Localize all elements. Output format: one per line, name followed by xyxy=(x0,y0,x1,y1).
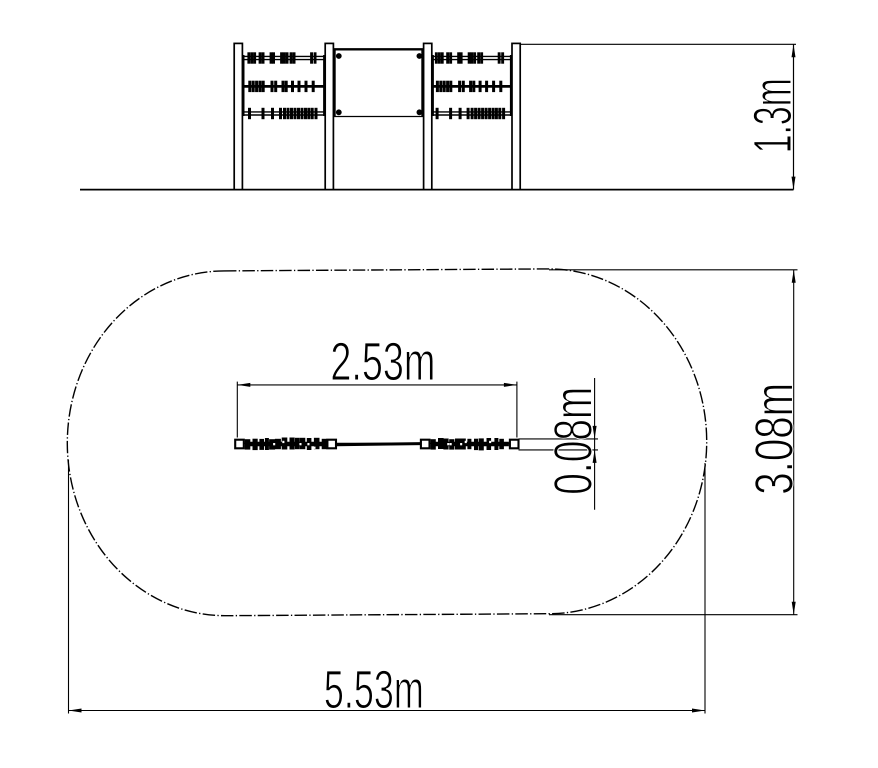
svg-text:5.53m: 5.53m xyxy=(324,660,424,720)
svg-text:3.08m: 3.08m xyxy=(745,383,805,495)
svg-text:2.53m: 2.53m xyxy=(330,332,435,392)
svg-text:0.08m: 0.08m xyxy=(544,387,604,495)
svg-text:1.3m: 1.3m xyxy=(743,78,803,153)
